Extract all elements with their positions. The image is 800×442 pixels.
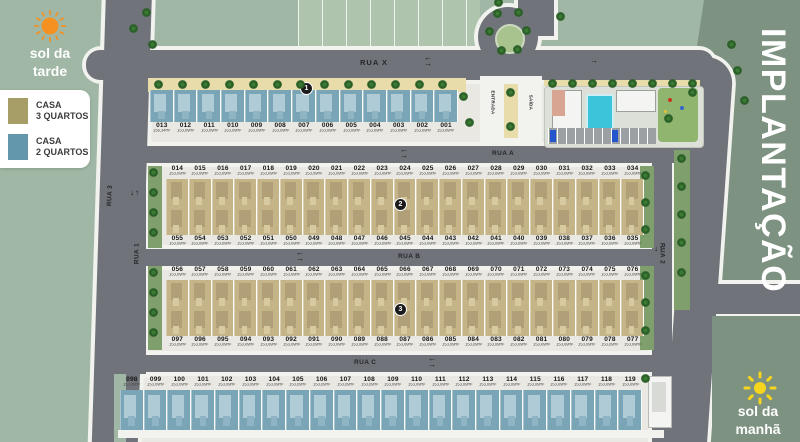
lot-109: 109153,09m² [381,376,405,430]
lot-area: 153,09m² [305,172,322,176]
house-icon [500,390,524,430]
house-icon [387,90,411,122]
lot-048: 048153,09m² [325,207,348,249]
lot-015: 015153,09m² [189,165,212,207]
afternoon-sun-label: sol da tarde [4,44,96,80]
palm-tree-icon [149,188,158,197]
house-icon [348,207,371,235]
house-icon [234,207,257,235]
lot-area: 153,09m² [169,343,186,347]
house-icon [571,390,595,430]
lot-area: 153,09m² [283,273,300,277]
lot-054: 054153,09m² [189,207,212,249]
lot-071: 071153,09m² [507,266,530,308]
lot-area: 153,09m² [414,129,431,133]
lot-117: 117153,09m² [571,376,595,430]
lot-area: 153,09m² [374,343,391,347]
lot-area: 153,09m² [328,172,345,176]
lot-093: 093153,09m² [257,308,280,350]
house-icon [476,390,500,430]
legend: CASA 3 QUARTOS CASA 2 QUARTOS [0,90,90,168]
accessible-parking-spot [612,130,618,142]
house-icon [507,280,530,308]
house-icon [262,390,286,430]
lot-area: 153,09m² [533,343,550,347]
lot-010: 010153,09m² [221,90,245,136]
palm-tree-icon [641,271,650,280]
palm-tree-icon [465,118,474,127]
palm-tree-icon [727,40,736,49]
house-icon [234,308,257,336]
legend-label: CASA [36,136,88,147]
palm-tree-icon [129,24,138,33]
legend-item-casa-3-quartos: CASA 3 QUARTOS [8,98,90,124]
house-icon [485,207,508,235]
casa-3-quartos-swatch [8,98,28,124]
lot-area: 153,09m² [289,383,306,387]
lot-013: 013156,34m² [150,90,174,136]
lot-area: 153,09m² [601,242,618,246]
house-icon [189,179,212,207]
lot-019: 019153,09m² [280,165,303,207]
house-icon [553,280,576,308]
lot-026: 026153,09m² [439,165,462,207]
traffic-arrow-icon: ↓↑ [130,190,139,196]
lot-110: 110153,09m² [405,376,429,430]
site-plan: 013156,34m²012153,09m²011153,09m²010153,… [0,0,800,442]
street-label-rua-a: RUA A [492,150,514,157]
house-icon [371,280,394,308]
lot-089: 089153,09m² [348,308,371,350]
traffic-arrow-icon: → [590,58,598,64]
palm-tree-icon [740,96,749,105]
lot-area: 153,09m² [556,343,573,347]
lot-area: 153,09m² [533,242,550,246]
house-icon [166,207,189,235]
lot-area: 153,09m² [419,242,436,246]
lot-area: 153,09m² [396,273,413,277]
morning-sun-label: sol da manhã [716,402,800,438]
house-icon [268,90,292,122]
lot-008: 008153,09m² [268,90,292,136]
casa-2-quartos-swatch [8,134,28,160]
lot-area: 153,09m² [218,383,235,387]
palm-tree-icon [149,168,158,177]
street-label-rua-1: RUA 1 [134,234,141,274]
legend-item-casa-2-quartos: CASA 2 QUARTOS [8,134,90,160]
lot-area: 153,09m² [374,172,391,176]
lot-area: 153,09m² [579,273,596,277]
lot-051: 051153,09m² [257,207,280,249]
legend-label: CASA [36,100,88,111]
lot-area: 153,09m² [192,273,209,277]
house-icon [348,179,371,207]
lot-004: 004153,09m² [363,90,387,136]
lot-068: 068153,09m² [439,266,462,308]
palm-tree-icon [485,27,494,36]
playground-equipment [680,106,684,110]
house-icon [310,390,334,430]
lot-046: 046153,09m² [371,207,394,249]
road-rua-x [86,50,714,80]
lot-area: 153,09m² [169,242,186,246]
lot-row-5: 097153,09m²096153,09m²095153,09m²094153,… [166,308,644,350]
palm-tree-icon [641,171,650,180]
palm-tree-icon [588,79,597,88]
lot-119: 119153,09m² [618,376,642,430]
house-icon [411,90,435,122]
road-rua-a [132,146,702,163]
lot-area: 153,09m² [295,129,312,133]
house-icon [144,390,168,430]
house-icon [452,390,476,430]
palm-tree-icon [668,79,677,88]
lot-045: 045153,09m² [394,207,417,249]
house-icon [530,280,553,308]
lot-area: 153,09m² [601,273,618,277]
house-icon [553,207,576,235]
lot-081: 081153,09m² [530,308,553,350]
house-icon [189,280,212,308]
lot-041: 041153,09m² [485,207,508,249]
lot-area: 153,09m² [214,273,231,277]
house-icon [434,90,458,122]
lot-056: 056153,09m² [166,266,189,308]
lot-area: 153,09m² [601,343,618,347]
street-label-rua-b: RUA B [398,253,420,260]
traffic-arrow-icon: ←→ [424,55,432,67]
lot-area: 153,09m² [390,129,407,133]
house-icon [553,179,576,207]
lot-092: 092153,09m² [280,308,303,350]
street-label-rua-c: RUA C [354,359,376,366]
palm-tree-icon [273,80,282,89]
lot-021: 021153,09m² [325,165,348,207]
lot-080: 080153,09m² [553,308,576,350]
accessible-parking-spot [550,130,556,142]
lot-area: 153,09m² [283,343,300,347]
palm-tree-icon [249,80,258,89]
house-icon [303,207,326,235]
lot-101: 101153,09m² [191,376,215,430]
lot-area: 153,09m² [260,172,277,176]
house-icon [363,90,387,122]
house-icon [280,207,303,235]
house-icon [576,280,599,308]
lot-row-4: 056153,09m²057153,09m²058153,09m²059153,… [166,266,644,308]
house-icon [286,390,310,430]
house-icon [381,390,405,430]
lot-area: 153,09m² [456,383,473,387]
house-icon [348,308,371,336]
house-icon [530,179,553,207]
lot-070: 070153,09m² [485,266,508,308]
lot-066: 066153,09m² [394,266,417,308]
lot-area: 153,09m² [319,129,336,133]
lot-064: 064153,09m² [348,266,371,308]
lot-area: 153,09m² [579,242,596,246]
lot-067: 067153,09m² [416,266,439,308]
lot-005: 005153,09m² [340,90,364,136]
house-icon [547,390,571,430]
lot-115: 115153,09m² [523,376,547,430]
lot-020: 020153,09m² [303,165,326,207]
lot-044: 044153,09m² [416,207,439,249]
lot-031: 031153,09m² [553,165,576,207]
house-icon [485,280,508,308]
lot-042: 042153,09m² [462,207,485,249]
lot-area: 153,09m² [598,383,615,387]
lot-049: 049153,09m² [303,207,326,249]
house-icon [166,280,189,308]
palm-tree-icon [514,8,523,17]
lot-060: 060153,09m² [257,266,280,308]
house-icon [371,308,394,336]
lot-area: 153,09m² [442,242,459,246]
sun-label-line: manhã [716,420,800,438]
lot-009: 009153,09m² [245,90,269,136]
traffic-arrow-icon: ←→ [296,250,304,262]
house-icon [166,308,189,336]
palm-tree-icon [688,79,697,88]
lot-097: 097153,09m² [166,308,189,350]
palm-tree-icon [664,114,673,123]
palm-tree-icon [733,66,742,75]
legend-label: 2 QUARTOS [36,147,88,158]
palm-tree-icon [149,268,158,277]
lot-area: 153,09m² [437,129,454,133]
lot-002: 002153,09m² [411,90,435,136]
palm-tree-icon [344,80,353,89]
palm-tree-icon [149,288,158,297]
lot-003: 003153,09m² [387,90,411,136]
lot-area: 153,09m² [237,343,254,347]
palm-tree-icon [648,79,657,88]
lot-area: 153,09m² [169,172,186,176]
lot-area: 153,09m² [579,343,596,347]
lot-row-3: 055153,09m²054153,09m²053153,09m²052153,… [166,207,644,249]
lot-area: 153,09m² [503,383,520,387]
lot-091: 091153,09m² [303,308,326,350]
lot-084: 084153,09m² [462,308,485,350]
palm-tree-icon [608,79,617,88]
lot-018: 018153,09m² [257,165,280,207]
lot-area: 153,09m² [351,172,368,176]
lot-099: 099153,09m² [144,376,168,430]
lot-area: 153,09m² [550,383,567,387]
lot-098: 098157,39m² [120,376,144,430]
lot-063: 063153,09m² [325,266,348,308]
palm-tree-icon [641,198,650,207]
lot-area: 153,09m² [510,172,527,176]
lot-118: 118153,09m² [595,376,619,430]
lot-area: 153,09m² [260,343,277,347]
lot-025: 025153,09m² [416,165,439,207]
house-icon [167,390,191,430]
palm-tree-icon [641,225,650,234]
lot-area: 153,09m² [465,242,482,246]
street-label-rua-3: RUA 3 [106,175,114,215]
lot-107: 107153,09m² [334,376,358,430]
house-icon [599,207,622,235]
house-icon [348,280,371,308]
lot-059: 059153,09m² [234,266,257,308]
house-icon [439,280,462,308]
house-icon [303,179,326,207]
palm-tree-icon [641,374,650,383]
palm-tree-icon [391,80,400,89]
house-icon [257,207,280,235]
page-title: IMPLANTAÇÃO [752,28,792,288]
house-icon [462,207,485,235]
house-icon [429,390,453,430]
house-icon [212,308,235,336]
lot-area: 153,09m² [624,242,641,246]
lot-088: 088153,09m² [371,308,394,350]
house-icon [576,308,599,336]
palm-tree-icon [688,88,697,97]
house-icon [439,207,462,235]
street-label-rua-2: RUA 2 [659,234,666,274]
lot-030: 030153,09m² [530,165,553,207]
lot-area: 153,09m² [432,383,449,387]
house-icon [485,308,508,336]
lot-area: 153,09m² [624,172,641,176]
exit-label: SAÍDA [529,86,534,120]
lot-area: 153,09m² [487,273,504,277]
lot-area: 153,09m² [442,273,459,277]
lot-area: 153,09m² [260,273,277,277]
lot-057: 057153,09m² [189,266,212,308]
lot-area: 153,09m² [374,242,391,246]
house-icon [576,207,599,235]
palm-tree-icon [415,80,424,89]
lot-016: 016153,09m² [212,165,235,207]
lot-area: 153,09m² [177,129,194,133]
neighbor-parcels [298,0,480,50]
lot-079: 079153,09m² [576,308,599,350]
lot-075: 075153,09m² [599,266,622,308]
house-icon [325,280,348,308]
lot-105: 105153,09m² [286,376,310,430]
playground-equipment [668,98,672,102]
house-icon [530,207,553,235]
lot-095: 095153,09m² [212,308,235,350]
palm-tree-icon [556,12,565,21]
palm-tree-icon [641,326,650,335]
lot-073: 073153,09m² [553,266,576,308]
traffic-arrow-icon: ←→ [400,147,408,159]
lot-row-6: 098157,39m²099153,09m²100153,09m²101153,… [120,376,642,430]
palm-tree-icon [513,45,522,54]
lot-area: 153,09m² [510,343,527,347]
house-icon [340,90,364,122]
house-icon [120,390,144,430]
house-icon [215,390,239,430]
house-icon [599,308,622,336]
house-icon [325,179,348,207]
lot-area: 153,09m² [237,273,254,277]
lot-area: 153,09m² [510,242,527,246]
lot-area: 153,09m² [305,242,322,246]
house-icon [257,280,280,308]
afternoon-sun-icon [28,4,72,48]
sun-label-line: sol da [716,402,800,420]
house-icon [239,390,263,430]
lot-061: 061153,09m² [280,266,303,308]
palm-tree-icon [149,228,158,237]
palm-tree-icon [677,268,686,277]
traffic-arrow-icon: ←→ [428,356,436,368]
lot-area: 153,09m² [556,172,573,176]
palm-tree-icon [628,79,637,88]
lot-011: 011153,09m² [197,90,221,136]
clubhouse-building [616,90,656,112]
house-icon [462,308,485,336]
house-icon [439,308,462,336]
lot-area: 153,09m² [171,383,188,387]
lot-area: 153,09m² [194,383,211,387]
house-icon [507,179,530,207]
lot-area: 153,09m² [192,343,209,347]
lot-area: 153,09m² [237,242,254,246]
lot-047: 047153,09m² [348,207,371,249]
lot-area: 153,09m² [533,172,550,176]
lot-104: 104153,09m² [262,376,286,430]
house-icon [416,280,439,308]
house-icon [507,308,530,336]
lot-001: 001153,09m² [434,90,458,136]
lot-114: 114153,09m² [500,376,524,430]
house-icon [212,280,235,308]
palm-tree-icon [497,46,506,55]
lot-area: 153,09m² [442,172,459,176]
house-icon [416,308,439,336]
house-icon [416,179,439,207]
lot-area: 153,09m² [272,129,289,133]
lot-area: 153,09m² [396,343,413,347]
lot-area: 153,09m² [487,172,504,176]
lot-116: 116153,09m² [547,376,571,430]
lot-103: 103153,09m² [239,376,263,430]
house-icon [166,179,189,207]
lot-055: 055153,09m² [166,207,189,249]
lot-082: 082153,09m² [507,308,530,350]
lot-053: 053153,09m² [212,207,235,249]
lot-area: 153,09m² [260,242,277,246]
lot-028: 028153,09m² [485,165,508,207]
traffic-arrow-icon: ↓↑ [654,246,663,252]
house-icon [280,308,303,336]
block-3-badge: 3 [394,303,407,316]
lot-area: 153,09m² [147,383,164,387]
lot-area: 153,09m² [487,343,504,347]
street-label-rua-x: RUA X [360,58,388,67]
lot-area: 153,09m² [556,273,573,277]
lot-area: 153,09m² [305,343,322,347]
palm-tree-icon [677,238,686,247]
lot-area: 153,09m² [169,273,186,277]
lot-area: 153,09m² [624,273,641,277]
palm-tree-icon [522,26,531,35]
palm-tree-icon [320,80,329,89]
lot-050: 050153,09m² [280,207,303,249]
house-icon [576,179,599,207]
lot-area: 153,09m² [479,383,496,387]
house-icon [618,390,642,430]
lot-area: 153,09m² [224,129,241,133]
palm-tree-icon [677,154,686,163]
